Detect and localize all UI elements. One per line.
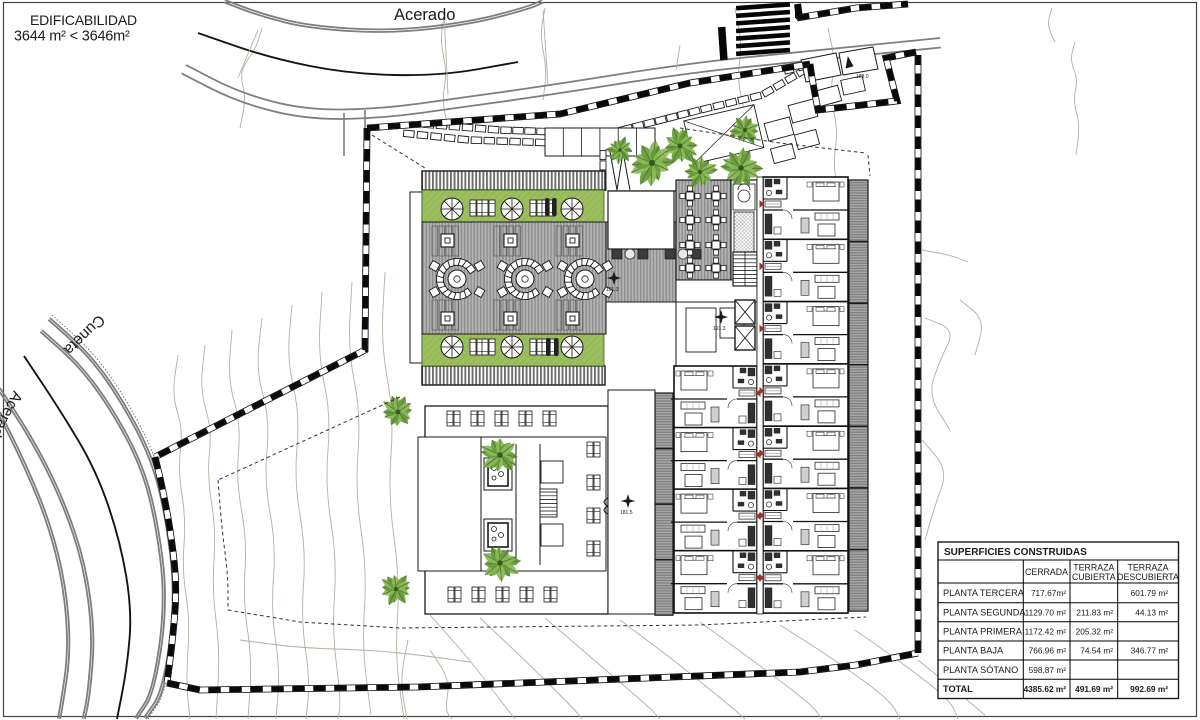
svg-text:181.5: 181.5 (620, 510, 633, 516)
svg-text:491.69 m²: 491.69 m² (1075, 684, 1113, 694)
svg-text:SUPERFICIES CONSTRUIDAS: SUPERFICIES CONSTRUIDAS (944, 547, 1087, 558)
svg-text:766.96 m²: 766.96 m² (1029, 646, 1067, 656)
svg-text:PLANTA BAJA: PLANTA BAJA (943, 646, 1004, 656)
svg-text:PLANTA SEGUNDA: PLANTA SEGUNDA (943, 607, 1026, 617)
svg-text:74.54 m²: 74.54 m² (1080, 646, 1113, 656)
svg-text:191.3: 191.3 (713, 326, 726, 332)
svg-text:CERRADA: CERRADA (1025, 567, 1068, 577)
svg-text:CUBIERTA: CUBIERTA (1072, 572, 1116, 582)
svg-text:TOTAL: TOTAL (943, 684, 973, 694)
svg-text:DESCUBIERTA: DESCUBIERTA (1117, 572, 1179, 582)
svg-text:205.32 m²: 205.32 m² (1076, 627, 1114, 637)
svg-text:TERRAZA: TERRAZA (1127, 563, 1168, 573)
svg-text:183.0: 183.0 (856, 74, 869, 80)
svg-text:191.3: 191.3 (606, 287, 619, 293)
svg-text:346.77 m²: 346.77 m² (1131, 646, 1169, 656)
svg-text:717.67m²: 717.67m² (1031, 588, 1066, 598)
svg-text:211.83 m²: 211.83 m² (1076, 607, 1113, 617)
svg-text:601.79 m²: 601.79 m² (1131, 588, 1169, 598)
svg-text:1172.42 m²: 1172.42 m² (1025, 627, 1067, 637)
svg-text:598.87 m²: 598.87 m² (1029, 665, 1067, 675)
svg-text:TERRAZA: TERRAZA (1073, 563, 1114, 573)
svg-text:4385.62 m²: 4385.62 m² (1024, 684, 1067, 694)
svg-text:PLANTA SÓTANO: PLANTA SÓTANO (943, 665, 1018, 675)
svg-text:PLANTA PRIMERA: PLANTA PRIMERA (943, 627, 1023, 637)
svg-text:3644 m² < 3646m²: 3644 m² < 3646m² (14, 29, 130, 45)
svg-text:EDIFICABILIDAD: EDIFICABILIDAD (30, 12, 137, 28)
svg-text:44.13 m²: 44.13 m² (1135, 607, 1168, 617)
svg-text:PLANTA TERCERA: PLANTA TERCERA (943, 588, 1025, 598)
svg-text:Acerado: Acerado (394, 6, 455, 24)
svg-text:992.69 m²: 992.69 m² (1130, 684, 1168, 694)
svg-text:1129.70 m²: 1129.70 m² (1025, 607, 1067, 617)
